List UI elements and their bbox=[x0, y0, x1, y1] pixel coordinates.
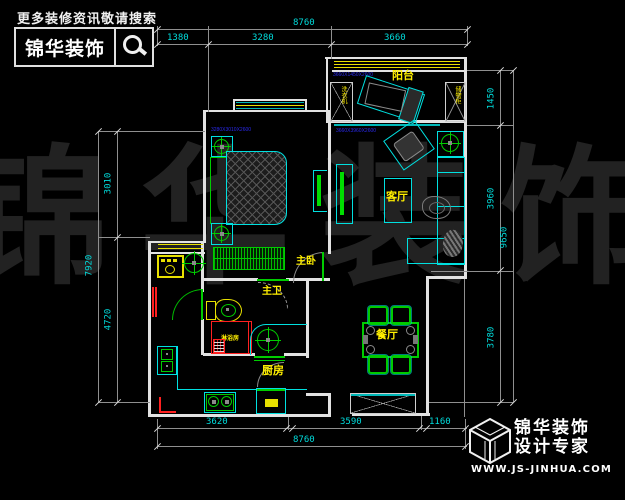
dim-top-3: 3660 bbox=[384, 34, 406, 43]
dim-top-total: 8760 bbox=[293, 19, 315, 28]
balcony-cabinet-right-label: 储物柜 bbox=[452, 86, 462, 104]
dim-left-total: 7920 bbox=[85, 255, 94, 277]
wall-segment bbox=[203, 110, 206, 243]
dim-bottom-3: 1160 bbox=[429, 418, 451, 427]
balcony-window-line bbox=[334, 64, 460, 65]
showerhead bbox=[213, 339, 225, 353]
dimension-line bbox=[513, 70, 514, 402]
dimension-line bbox=[98, 131, 99, 402]
dining-chair bbox=[368, 306, 388, 325]
bathroom-door-header bbox=[257, 279, 289, 281]
dimension-line bbox=[117, 131, 118, 402]
living-room-label: 客厅 bbox=[386, 192, 408, 203]
dining-chair bbox=[391, 355, 411, 374]
kitchen-door-header bbox=[254, 360, 285, 361]
gas-line bbox=[159, 397, 161, 412]
balcony-cabinet-right: 储物柜 bbox=[445, 82, 466, 122]
wall-segment bbox=[325, 57, 467, 59]
dimension-line bbox=[157, 29, 467, 30]
dimension-line bbox=[98, 237, 150, 238]
dimension-tick bbox=[464, 41, 471, 48]
dim-left-2: 4720 bbox=[104, 309, 113, 331]
header-slogan: 更多装修资讯敬请搜索 bbox=[17, 8, 157, 27]
dim-top-2: 3280 bbox=[252, 34, 274, 43]
cube-logo-icon bbox=[466, 416, 514, 466]
brand-logo-box: 锦华装饰 bbox=[14, 27, 154, 67]
dim-right-total: 9650 bbox=[500, 227, 509, 249]
footer-brand: 锦华装饰 bbox=[514, 419, 590, 437]
wall-segment bbox=[148, 414, 331, 417]
shaft-box bbox=[350, 393, 416, 414]
wall-segment bbox=[328, 393, 331, 415]
dim-left-1: 3010 bbox=[104, 173, 113, 195]
shower-enclosure: 淋浴房 bbox=[211, 321, 252, 354]
dimension-line bbox=[421, 416, 422, 430]
balcony-cabinet-left: 洗衣机 bbox=[330, 82, 353, 122]
footer-tagline: 设计专家 bbox=[514, 438, 590, 456]
search-icon[interactable] bbox=[116, 29, 152, 65]
wall-segment bbox=[148, 241, 151, 417]
master-bedroom-label: 主卧 bbox=[296, 256, 316, 267]
master-bathroom-label: 主卫 bbox=[262, 286, 282, 297]
magnifier-handle bbox=[137, 46, 147, 55]
bed bbox=[226, 151, 287, 225]
balcony-window-line bbox=[334, 67, 460, 68]
dim-bottom-total: 8760 bbox=[293, 436, 315, 445]
bedroom-tv bbox=[317, 175, 321, 206]
dim-bottom-1: 3620 bbox=[206, 418, 228, 427]
wall-segment bbox=[426, 276, 429, 416]
brand-name: 锦华装饰 bbox=[16, 29, 114, 65]
toilet-bowl bbox=[215, 299, 242, 322]
dimension-line bbox=[157, 446, 467, 447]
bedroom-window-line bbox=[236, 102, 304, 103]
dim-top-1: 1380 bbox=[167, 34, 189, 43]
fridge bbox=[256, 388, 286, 414]
bedroom-door-leaf bbox=[322, 252, 324, 281]
balcony-label: 阳台 bbox=[392, 71, 414, 82]
wall-segment bbox=[203, 110, 330, 112]
tv-cabinet bbox=[336, 164, 353, 224]
pipe-line bbox=[152, 287, 154, 317]
dimension-line bbox=[467, 70, 513, 71]
floor-plant bbox=[422, 196, 451, 219]
dimension-line bbox=[98, 402, 150, 403]
dim-right-1: 1450 bbox=[487, 88, 496, 110]
dimension-line bbox=[467, 125, 513, 126]
balcony-window-line bbox=[334, 61, 460, 62]
dimension-line bbox=[208, 26, 209, 112]
footer-website[interactable]: WWW.JS-JINHUA.COM bbox=[471, 464, 612, 475]
counter-edge bbox=[177, 346, 178, 390]
dimension-line bbox=[464, 279, 465, 417]
washing-machine bbox=[157, 255, 184, 278]
dim-right-2: 3960 bbox=[487, 188, 496, 210]
bedroom-window-line bbox=[236, 105, 304, 106]
dimension-tick bbox=[510, 399, 517, 406]
wall-segment bbox=[328, 110, 331, 254]
utility-basin bbox=[184, 253, 204, 273]
dining-room-label: 餐厅 bbox=[376, 330, 398, 341]
counter-edge bbox=[177, 389, 307, 390]
dining-chair bbox=[368, 355, 388, 374]
stove bbox=[204, 392, 236, 413]
gas-line bbox=[159, 411, 176, 413]
lounge-chair bbox=[357, 75, 425, 123]
laundry-door-leaf bbox=[201, 289, 203, 320]
living-size-note: 3660X3960X2600 bbox=[336, 129, 376, 134]
dimension-line bbox=[431, 271, 513, 272]
wall-segment bbox=[305, 99, 307, 111]
nightstand bbox=[211, 223, 233, 245]
wall-segment bbox=[233, 99, 235, 111]
wall-segment bbox=[233, 99, 307, 101]
washbasin bbox=[257, 329, 279, 351]
laundry-window-line bbox=[158, 244, 203, 245]
balcony-cabinet-left-label: 洗衣机 bbox=[338, 86, 348, 104]
living-tv bbox=[340, 172, 344, 215]
laundry-window-line bbox=[158, 248, 203, 249]
kitchen-sink bbox=[157, 346, 177, 375]
kitchen-door-header bbox=[254, 356, 285, 358]
dimension-line bbox=[98, 131, 205, 132]
living-window-line bbox=[334, 124, 440, 126]
dim-bottom-2: 3590 bbox=[340, 418, 362, 427]
floorplan-canvas: 锦华装饰 更多装修资讯敬请搜索 锦华装饰 3660X1450X2600 阳台 洗… bbox=[0, 0, 625, 500]
wall-segment bbox=[428, 276, 467, 279]
wardrobe bbox=[213, 247, 285, 270]
dim-right-3: 3780 bbox=[487, 327, 496, 349]
dining-chair bbox=[391, 306, 411, 325]
pipe-line bbox=[155, 287, 157, 317]
plant-box bbox=[437, 131, 464, 157]
wall-segment bbox=[201, 319, 204, 355]
bedroom-window-line bbox=[236, 108, 304, 109]
headboard bbox=[210, 157, 227, 224]
kitchen-label: 厨房 bbox=[262, 366, 284, 377]
dimension-line bbox=[157, 44, 467, 45]
wall-segment bbox=[148, 241, 205, 243]
bedroom-size-note: 3280X3010X2600 bbox=[211, 128, 251, 133]
wall-segment bbox=[203, 278, 258, 281]
